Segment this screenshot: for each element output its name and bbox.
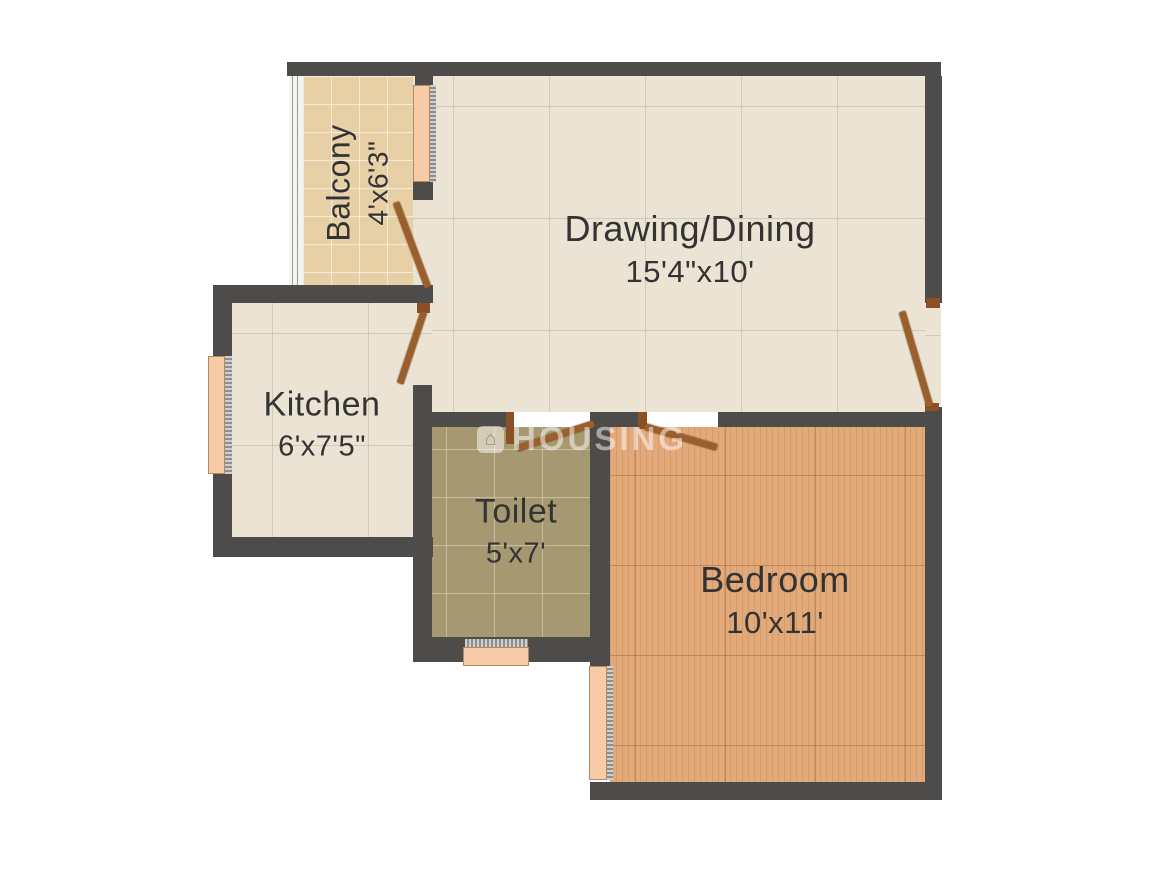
housing-watermark: ⌂ HOUSING <box>477 420 687 458</box>
wall-balcony-window-top-stub <box>415 76 433 85</box>
bedroom-window <box>589 666 607 780</box>
watermark-text: HOUSING <box>512 420 687 458</box>
toilet-window <box>463 647 529 666</box>
drawing-dining-room-label: Drawing/Dining 15'4"x10' <box>564 206 815 292</box>
balcony-room-dims: 4'x6'3" <box>361 124 396 241</box>
wall-right-lower <box>925 407 942 800</box>
wall-kitchen-top <box>213 285 433 303</box>
kitchen-window-glazing <box>225 356 232 474</box>
kitchen-room-label: Kitchen 6'x7'5" <box>264 384 381 465</box>
balcony-room-name: Balcony <box>319 124 359 241</box>
bedroom-window-glazing <box>607 666 613 780</box>
balcony-railing <box>289 76 303 285</box>
kitchen-room-name: Kitchen <box>264 384 381 427</box>
wall-drawing-bottom-right <box>718 412 941 427</box>
wall-bedroom-bottom <box>590 782 941 800</box>
wall-balcony-window-bottom-stub <box>413 182 433 200</box>
balcony-room-label: Balcony 4'x6'3" <box>319 124 396 241</box>
wall-kitchen-bottom <box>213 537 433 557</box>
bedroom-room-label: Bedroom 10'x11' <box>700 557 850 643</box>
house-icon: ⌂ <box>477 426 504 453</box>
bedroom-room-dims: 10'x11' <box>700 604 850 643</box>
toilet-room-name: Toilet <box>475 491 557 534</box>
balcony-window-glazing <box>430 85 436 182</box>
wall-top <box>287 62 941 76</box>
toilet-window-glazing <box>465 639 528 647</box>
toilet-room-label: Toilet 5'x7' <box>475 491 557 572</box>
wall-right-upper <box>925 76 942 303</box>
entrance-door-frame-stub <box>926 298 940 308</box>
floor-plan: Balcony 4'x6'3" Drawing/Dining 15'4"x10'… <box>0 0 1160 870</box>
drawing-dining-room-dims: 15'4"x10' <box>564 253 815 292</box>
kitchen-room-dims: 6'x7'5" <box>264 428 381 464</box>
balcony-window <box>413 85 430 182</box>
drawing-dining-room-name: Drawing/Dining <box>564 206 815 251</box>
toilet-room-dims: 5'x7' <box>475 535 557 571</box>
wall-kitchen-right-toilet-left <box>413 385 432 662</box>
kitchen-window <box>208 356 225 474</box>
bedroom-room-name: Bedroom <box>700 557 850 602</box>
